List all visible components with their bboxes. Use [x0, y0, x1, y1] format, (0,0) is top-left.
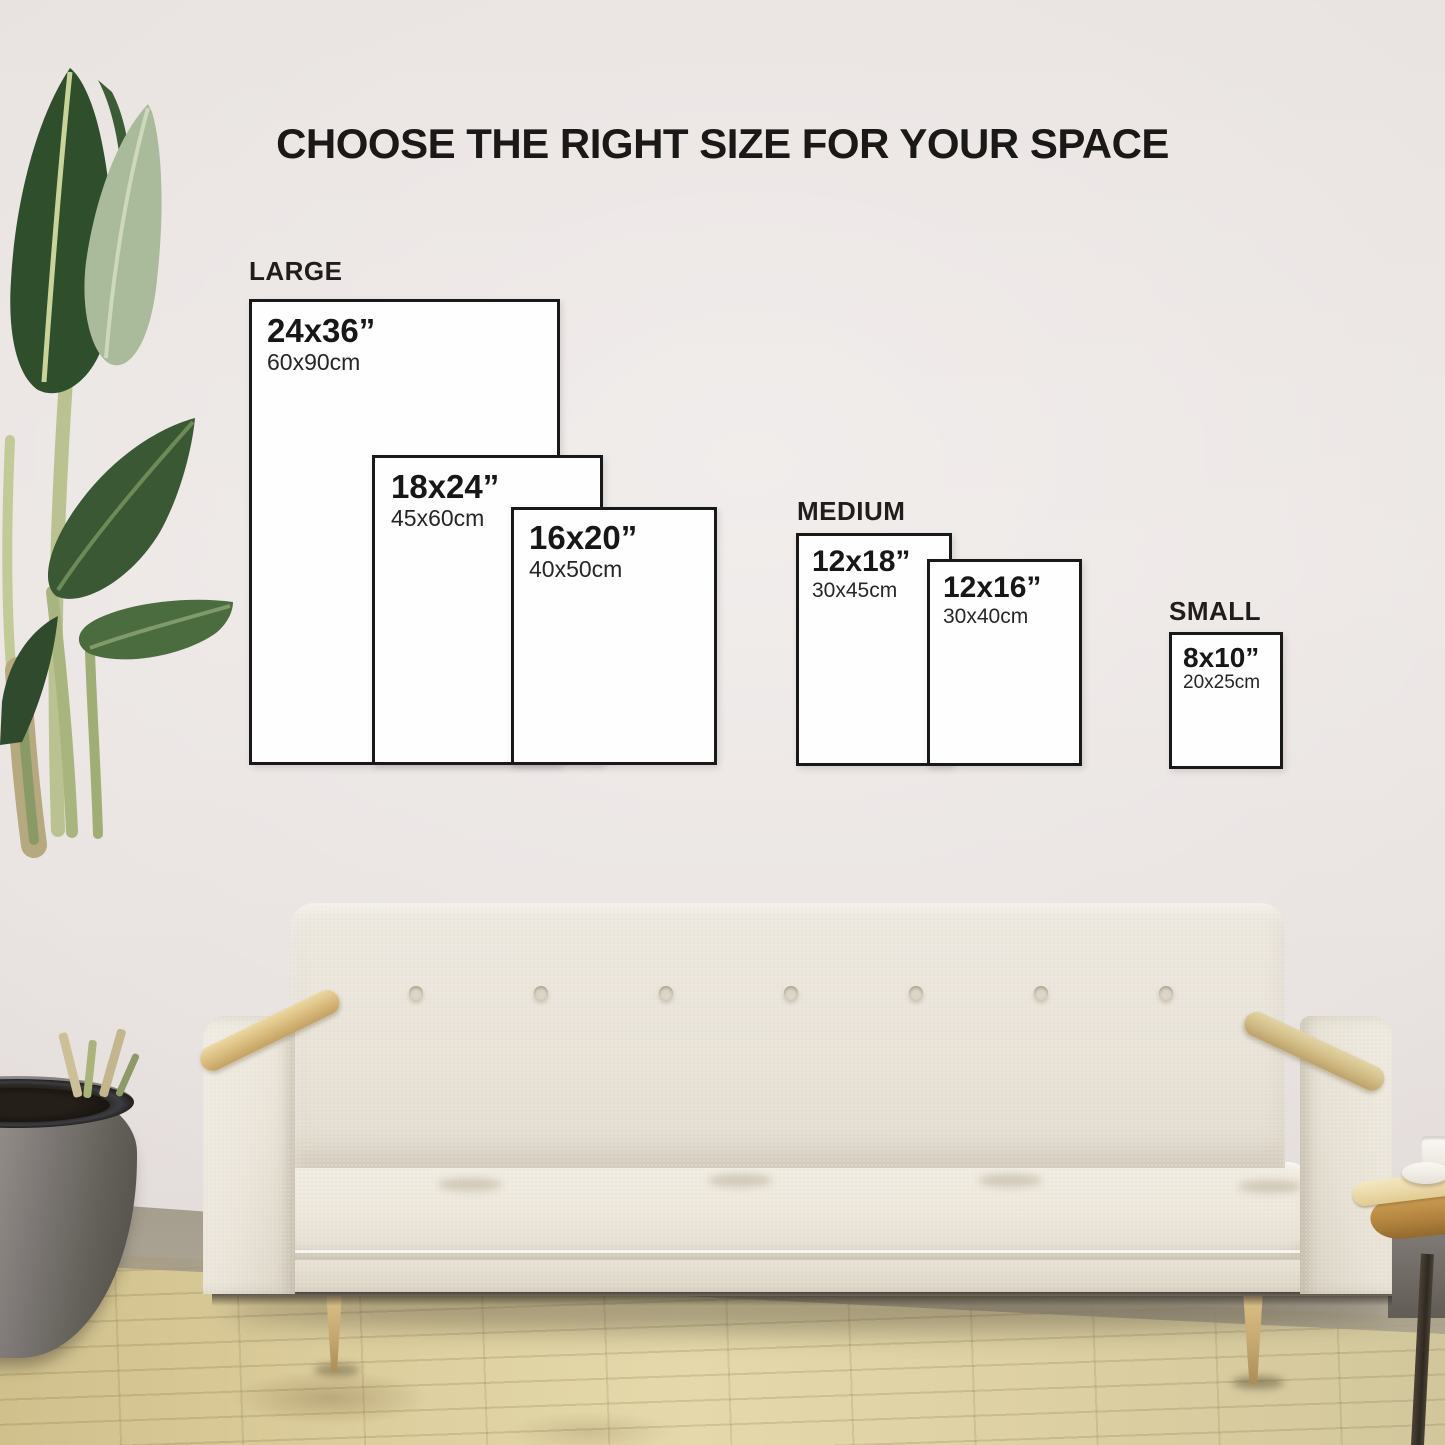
size-guide-scene: CHOOSE THE RIGHT SIZE FOR YOUR SPACE LAR… — [0, 0, 1445, 1445]
seat-tuft-dimple — [1238, 1180, 1302, 1193]
sofa-tuft-button — [909, 986, 923, 1000]
size-cm: 60x90cm — [267, 349, 557, 377]
size-box-12x16: 12x16” 30x40cm — [927, 559, 1082, 766]
size-inches: 18x24” — [391, 470, 600, 505]
sofa-tuft-button — [1034, 986, 1048, 1000]
sofa-tuft-button — [534, 986, 548, 1000]
size-cm: 40x50cm — [529, 556, 714, 584]
sofa-tuft-button — [1159, 986, 1173, 1000]
size-cm: 20x25cm — [1183, 672, 1280, 695]
side-table-shadow-area — [1388, 1226, 1445, 1318]
size-inches: 12x16” — [943, 572, 1079, 604]
sofa-tuft-button — [659, 986, 673, 1000]
sofa-seat-cushion — [280, 1162, 1310, 1264]
size-cm: 30x40cm — [943, 604, 1079, 629]
sofa-under-shadow — [212, 1292, 1392, 1306]
sofa-tuft-button — [784, 986, 798, 1000]
size-inches: 24x36” — [267, 314, 557, 349]
sofa-seat-piping — [284, 1250, 1306, 1253]
size-inches: 16x20” — [529, 521, 714, 556]
size-inches: 8x10” — [1183, 643, 1280, 672]
seat-tuft-dimple — [708, 1174, 772, 1187]
size-box-8x10: 8x10” 20x25cm — [1169, 632, 1283, 769]
seat-tuft-dimple — [978, 1174, 1042, 1187]
sofa-backrest — [290, 903, 1285, 1168]
group-label-small: SMALL — [1169, 596, 1261, 627]
size-box-16x20: 16x20” 40x50cm — [511, 507, 717, 765]
sofa-tuft-button — [409, 986, 423, 1000]
sofa-leg-shadow — [1232, 1376, 1284, 1389]
group-label-large: LARGE — [249, 256, 343, 287]
white-plate — [1402, 1162, 1445, 1184]
group-label-medium: MEDIUM — [797, 496, 905, 527]
seat-tuft-dimple — [438, 1178, 502, 1191]
page-title: CHOOSE THE RIGHT SIZE FOR YOUR SPACE — [0, 120, 1445, 168]
sofa-base — [214, 1260, 1392, 1296]
